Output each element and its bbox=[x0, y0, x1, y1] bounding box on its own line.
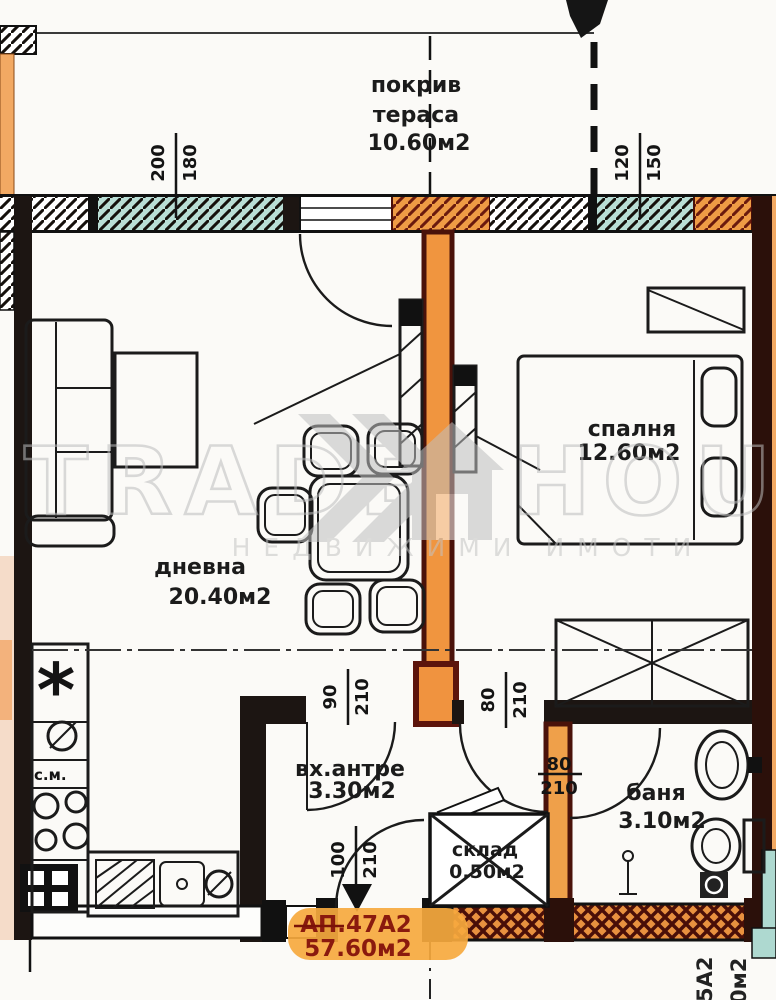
wardrobe bbox=[556, 620, 748, 706]
neighbor-label-id: 5А2 bbox=[693, 957, 717, 1000]
terrace-label-2: тераса bbox=[373, 103, 459, 128]
terrace-label-1: покрив bbox=[371, 73, 461, 98]
watermark-brand-right: HOUSE bbox=[512, 428, 776, 537]
svg-text:120: 120 bbox=[612, 144, 633, 182]
storage-area: 0.50м2 bbox=[449, 861, 525, 883]
svg-text:210: 210 bbox=[510, 681, 531, 719]
storage-box: склад 0.50м2 bbox=[430, 814, 548, 906]
corner-hatch-block bbox=[0, 26, 36, 54]
balcony-door-arc bbox=[300, 234, 392, 326]
entry-arrow-icon bbox=[342, 884, 372, 912]
drain-circle-slash-icon bbox=[206, 871, 232, 897]
svg-text:200: 200 bbox=[148, 144, 169, 182]
apartment-area: 57.60м2 bbox=[304, 936, 412, 962]
masonry-pier bbox=[392, 196, 490, 232]
balcony-door-opening bbox=[300, 196, 392, 232]
terrace-left-strip bbox=[0, 54, 14, 196]
left-wall bbox=[14, 196, 32, 940]
right-wall bbox=[752, 196, 772, 940]
svg-text:0м2: 0м2 bbox=[727, 958, 751, 1000]
svg-text:5А2: 5А2 bbox=[693, 957, 717, 1000]
neighbor-label-area: 0м2 bbox=[727, 958, 751, 1000]
svg-text:210: 210 bbox=[352, 678, 373, 716]
window-band-left bbox=[95, 196, 285, 232]
dim-hall-door: 90 210 bbox=[320, 669, 373, 725]
shower-mixer-symbol bbox=[619, 851, 637, 894]
washing-machine-label: с.м. bbox=[34, 766, 67, 784]
pillow bbox=[702, 368, 736, 426]
bathroom: баня 3.10м2 bbox=[618, 731, 764, 898]
hall-area: 3.30м2 bbox=[308, 779, 396, 804]
door-leaf-line bbox=[254, 354, 400, 424]
svg-text:90: 90 bbox=[320, 684, 341, 709]
bath-label: баня bbox=[626, 781, 686, 806]
floor-drain bbox=[700, 872, 728, 898]
floor-plan-page: покрив тераса 10.60м2 bbox=[0, 0, 776, 1000]
dim-bedroom-door: 80 210 bbox=[478, 672, 531, 728]
bath-area: 3.10м2 bbox=[618, 809, 706, 834]
storage-label: склад bbox=[452, 839, 518, 861]
living-area: 20.40м2 bbox=[169, 585, 272, 610]
dining-chair bbox=[370, 580, 424, 632]
external-wall-band bbox=[0, 194, 776, 233]
svg-text:150: 150 bbox=[644, 144, 665, 182]
stove-burners-icon bbox=[34, 792, 88, 850]
dining-chair bbox=[306, 584, 360, 634]
window-band-right bbox=[594, 196, 694, 232]
svg-text:210: 210 bbox=[540, 778, 578, 799]
svg-text:180: 180 bbox=[180, 144, 201, 182]
watermark: TRADE HOUSE НЕДВИЖИМИ ИМОТИ bbox=[24, 414, 776, 562]
svg-text:80: 80 bbox=[546, 754, 571, 775]
hall: вх.антре 3.30м2 bbox=[295, 757, 405, 804]
terrace-area: 10.60м2 bbox=[368, 131, 471, 156]
hall-column bbox=[416, 664, 456, 724]
watermark-tagline: НЕДВИЖИМИ ИМОТИ bbox=[232, 533, 705, 562]
apartment-badge: АП.47А2 57.60м2 bbox=[288, 908, 468, 962]
terrace: покрив тераса 10.60м2 bbox=[0, 0, 608, 196]
svg-text:80: 80 bbox=[478, 687, 499, 712]
teal-block-2 bbox=[752, 928, 776, 958]
fridge-asterisk-icon: * bbox=[37, 648, 76, 734]
dresser bbox=[648, 288, 744, 332]
svg-text:210: 210 bbox=[360, 841, 381, 879]
svg-text:100: 100 bbox=[328, 841, 349, 879]
floor-plan-svg: покрив тераса 10.60м2 bbox=[0, 0, 776, 1000]
bath-top-wall bbox=[544, 700, 752, 724]
